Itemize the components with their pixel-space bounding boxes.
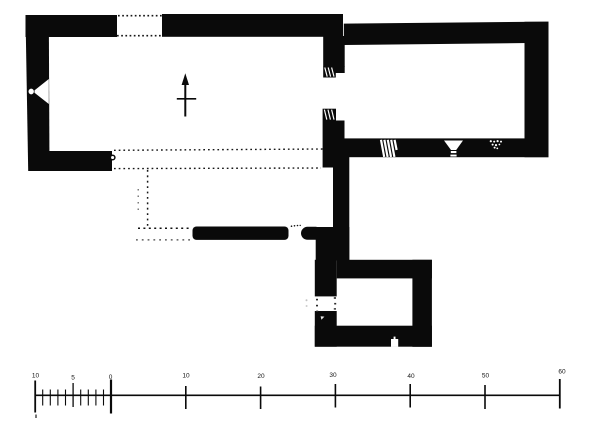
svg-text:20: 20 bbox=[257, 373, 265, 380]
svg-text:50: 50 bbox=[482, 373, 490, 380]
svg-text:0: 0 bbox=[109, 374, 113, 381]
svg-text:10: 10 bbox=[32, 373, 40, 380]
svg-text:40: 40 bbox=[407, 373, 415, 380]
svg-text:30: 30 bbox=[329, 372, 337, 379]
svg-text:10: 10 bbox=[182, 373, 190, 380]
svg-text:5: 5 bbox=[71, 375, 75, 382]
svg-text:60: 60 bbox=[558, 369, 566, 376]
